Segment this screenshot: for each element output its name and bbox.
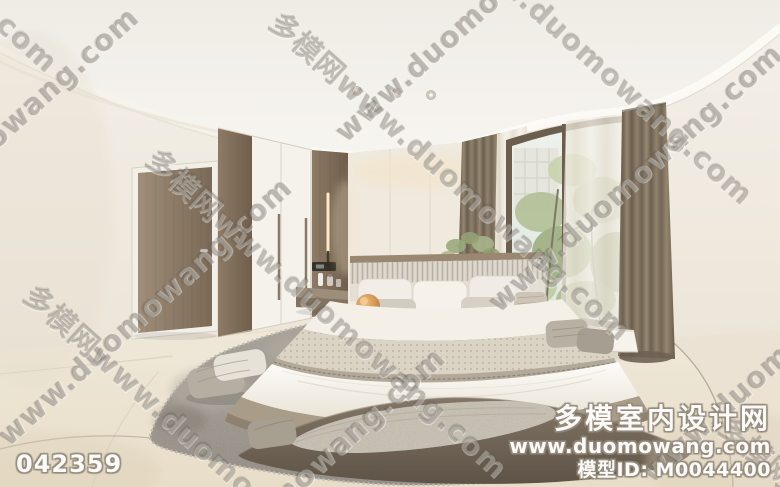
site-watermark-block: 多模室内设计网 www.duomowang.com 模型ID: M0044400: [509, 402, 771, 481]
door-floor-shadow: [133, 332, 217, 340]
site-url-watermark: www.duomowang.com: [509, 435, 771, 459]
wardrobe-wood-side-panel: [218, 128, 252, 337]
model-id-watermark: 模型ID: M0044400: [509, 459, 771, 481]
curtain-drape-right: [618, 103, 675, 363]
panorama-screenshot: www.duomowang.comwww.duomowang.comwww.du…: [0, 0, 780, 487]
photo-id-watermark: 042359: [16, 450, 122, 478]
entry-door: [132, 161, 218, 340]
smart-switch-panel: [312, 262, 336, 271]
door-handle: [200, 249, 208, 252]
site-name-watermark: 多模室内设计网: [509, 402, 771, 435]
